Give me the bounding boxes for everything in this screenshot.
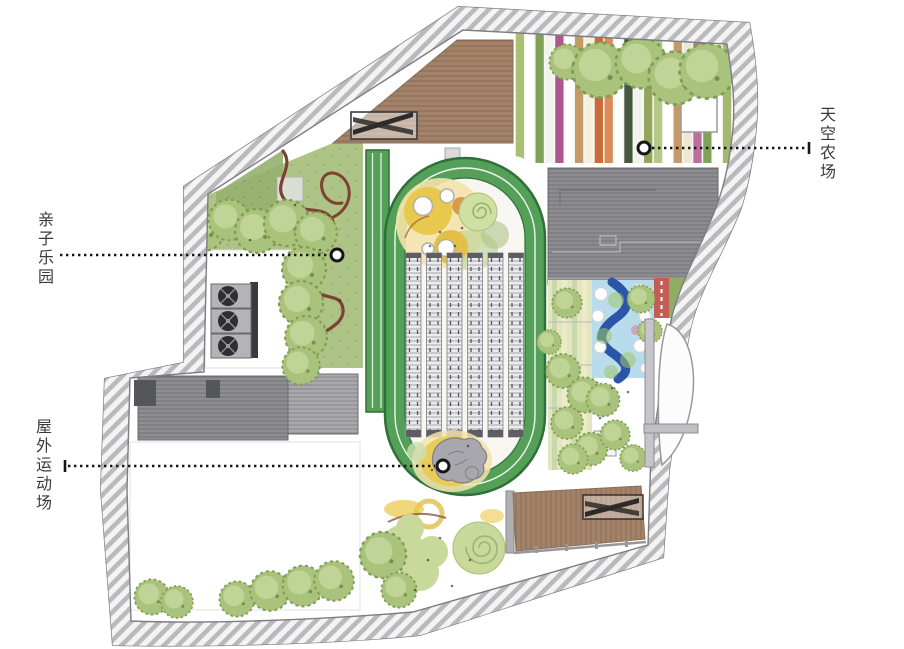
- skylight-louvers: [468, 253, 483, 437]
- leader-marker: [331, 249, 343, 261]
- hvac-units: [211, 282, 258, 358]
- tree-canopy: [620, 445, 646, 471]
- tree-canopy: [537, 330, 561, 354]
- hvac-unit: [211, 334, 251, 358]
- tree-canopy: [680, 44, 735, 99]
- roof-hatch-box: [134, 380, 156, 406]
- tree-canopy: [552, 288, 582, 318]
- skylight-cap: [488, 253, 503, 258]
- deck-edge-wall: [506, 491, 514, 553]
- deck-stair: [351, 112, 417, 139]
- machine-roof-band: [134, 374, 358, 440]
- tree-canopy: [600, 420, 630, 450]
- small-rock: [466, 467, 479, 480]
- ramp-frame: [645, 319, 654, 467]
- skylight-louvers: [447, 253, 462, 437]
- skylight-cap: [406, 430, 421, 437]
- skylight-louvers: [406, 253, 421, 437]
- skylight-cap: [488, 430, 503, 437]
- skylight-cap: [427, 253, 442, 258]
- skylight-cap: [509, 430, 524, 437]
- skylight-louvers: [509, 253, 524, 437]
- tree-canopy: [282, 347, 319, 384]
- label-family-park: 亲子乐园: [36, 211, 52, 287]
- farm-plot-strip: [516, 33, 524, 163]
- roof-garden-site-plan: 亲子乐园 天空农场 屋外运动场: [0, 0, 904, 649]
- leader-marker: [638, 142, 650, 154]
- label-sky-farm: 天空农场: [818, 106, 834, 182]
- tree-canopy: [627, 285, 655, 313]
- skylight-cap: [468, 253, 483, 258]
- tree-canopy: [551, 407, 583, 439]
- skylight-louvers: [427, 253, 442, 437]
- tree-canopy: [381, 572, 416, 607]
- tree-canopy: [314, 561, 354, 601]
- farm-plot-strip: [526, 33, 534, 163]
- skylight-cap: [447, 253, 462, 258]
- ramp-cross-bar: [644, 424, 698, 433]
- roof-hatch-box: [206, 380, 220, 398]
- hvac-unit: [211, 284, 251, 308]
- tree-canopy: [587, 384, 620, 417]
- tree-canopy: [360, 532, 406, 578]
- skylight-cap: [509, 253, 524, 258]
- tree-canopy: [219, 581, 254, 616]
- tree-canopy: [558, 444, 588, 474]
- site-plan-canvas: [0, 0, 904, 649]
- farm-plot-strip: [536, 33, 544, 163]
- skylight-louvers: [488, 253, 503, 437]
- label-outdoor-field: 屋外运动场: [34, 418, 50, 513]
- deck-stair: [583, 495, 643, 519]
- skylight-cap: [406, 253, 421, 258]
- leader-marker: [437, 460, 449, 472]
- running-track-area: [366, 150, 545, 495]
- tree-canopy: [161, 586, 193, 618]
- south-wood-deck: [506, 486, 646, 553]
- hvac-unit: [211, 309, 251, 333]
